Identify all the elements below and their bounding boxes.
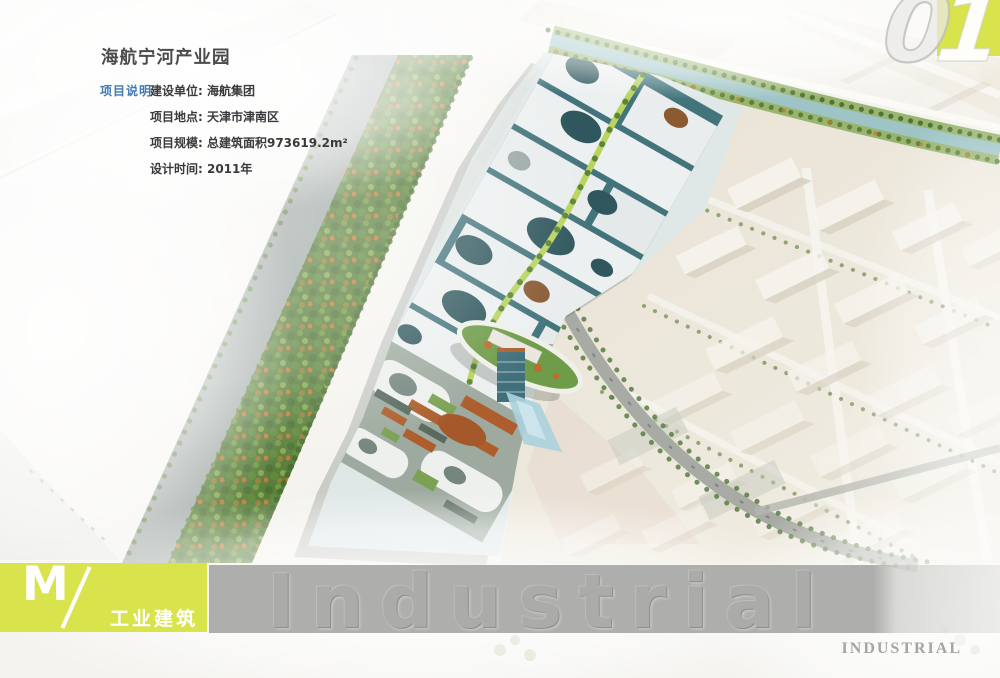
- corner-label: INDUSTRIAL: [842, 640, 962, 658]
- section-label: 项目说明: [100, 82, 152, 99]
- info-line-date: 设计时间: 2011年: [150, 158, 510, 180]
- presentation-page: 海航宁河产业园 项目说明 建设单位: 海航集团 项目地点: 天津市津南区 项目规…: [0, 0, 1000, 678]
- category-block: M 工业建筑: [0, 563, 207, 632]
- category-label: 工业建筑: [110, 604, 198, 631]
- info-line-owner: 建设单位: 海航集团: [150, 80, 510, 102]
- watermark-band: Industrial: [209, 565, 1000, 633]
- watermark-text: Industrial: [267, 565, 832, 633]
- info-line-scale: 项目规模: 总建筑面积973619.2m²: [150, 132, 510, 154]
- info-line-location: 项目地点: 天津市津南区: [150, 106, 510, 128]
- page-number: 01: [879, 0, 1000, 78]
- page-title: 海航宁河产业园: [101, 44, 231, 69]
- category-letter: M: [22, 557, 69, 612]
- page-number-one: 1: [931, 0, 1000, 84]
